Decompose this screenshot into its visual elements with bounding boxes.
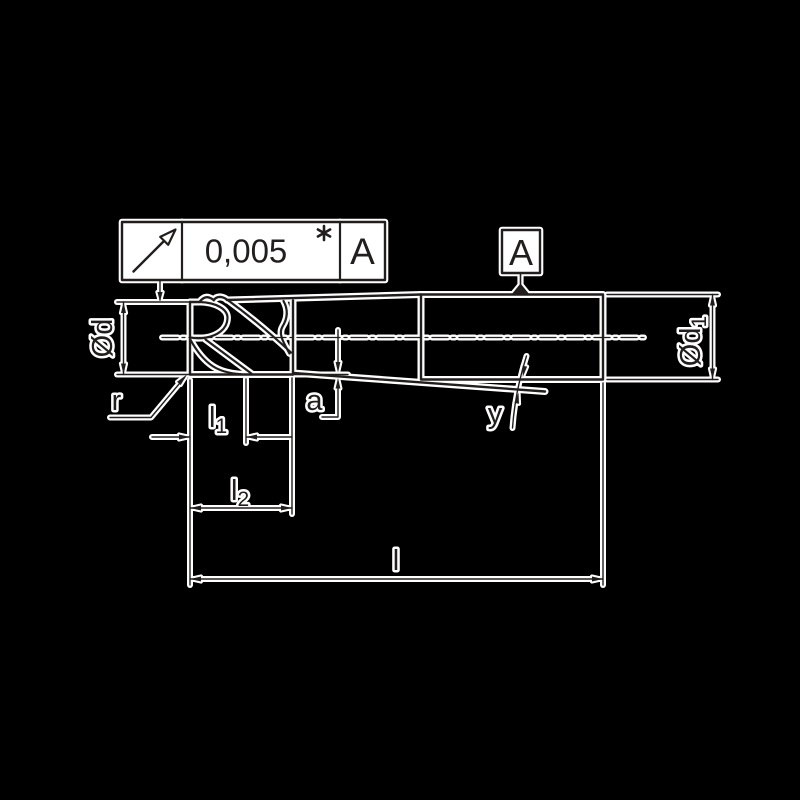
tolerance-datum-letter: A bbox=[350, 231, 375, 272]
label-neck-step-a: a bbox=[306, 385, 323, 417]
technical-drawing-canvas: 0,005 A A Ød Ød1 r l1 l2 l a y bbox=[0, 0, 800, 800]
label-length-l1: l1 bbox=[209, 402, 227, 438]
dimension-labels: Ød Ød1 r l1 l2 l a y bbox=[87, 316, 711, 577]
dimension-lines bbox=[110, 280, 713, 579]
label-taper-angle-y: y bbox=[488, 398, 503, 430]
datum-letter: A bbox=[509, 232, 533, 273]
label-length-l: l bbox=[393, 545, 399, 577]
tolerance-frame: 0,005 A bbox=[122, 222, 385, 280]
tolerance-value: 0,005 bbox=[205, 233, 288, 270]
label-diameter-d1: Ød1 bbox=[675, 316, 711, 366]
label-diameter-d: Ød bbox=[87, 319, 119, 358]
datum-flag: A bbox=[502, 230, 540, 295]
label-corner-radius-r: r bbox=[112, 385, 122, 417]
label-length-l2: l2 bbox=[231, 475, 249, 511]
